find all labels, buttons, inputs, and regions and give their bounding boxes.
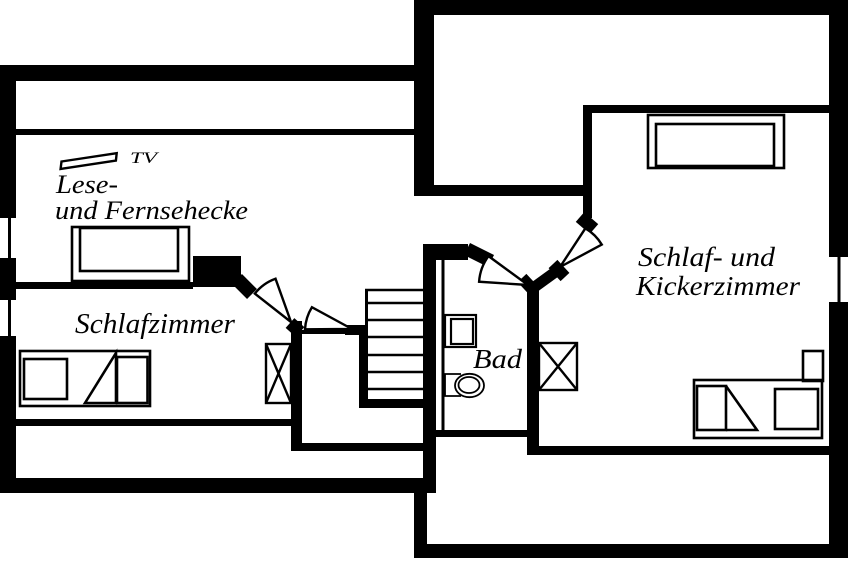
svg-text:Kickerzimmer: Kickerzimmer <box>635 271 801 301</box>
svg-text:Bad: Bad <box>473 344 523 374</box>
svg-text:und Fernsehecke: und Fernsehecke <box>55 196 248 225</box>
svg-text:TV: TV <box>130 150 160 167</box>
svg-text:Schlaf- und: Schlaf- und <box>638 242 776 272</box>
svg-text:Schlafzimmer: Schlafzimmer <box>75 309 235 340</box>
svg-text:Lese-: Lese- <box>55 170 118 199</box>
